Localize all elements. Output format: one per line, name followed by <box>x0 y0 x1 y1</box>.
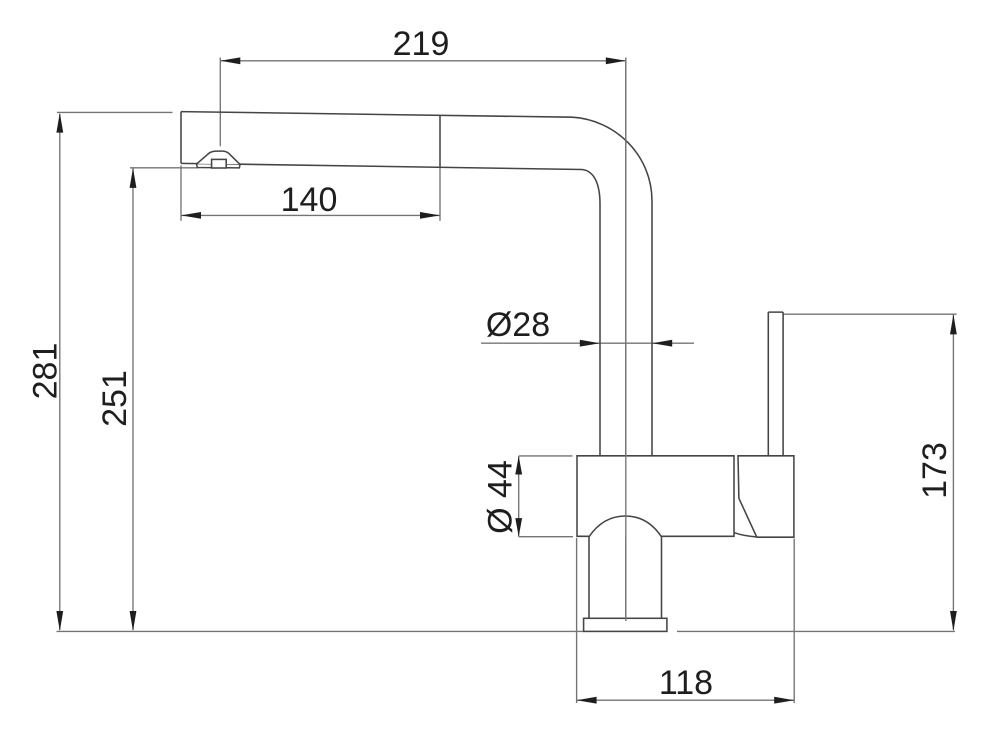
svg-text:173: 173 <box>916 442 954 499</box>
svg-text:281: 281 <box>27 343 65 400</box>
svg-text:251: 251 <box>96 370 134 427</box>
svg-text:Ø28: Ø28 <box>486 306 550 344</box>
svg-text:Ø 44: Ø 44 <box>482 460 520 534</box>
svg-text:219: 219 <box>393 25 450 63</box>
svg-text:118: 118 <box>659 664 713 702</box>
svg-text:140: 140 <box>281 181 338 219</box>
